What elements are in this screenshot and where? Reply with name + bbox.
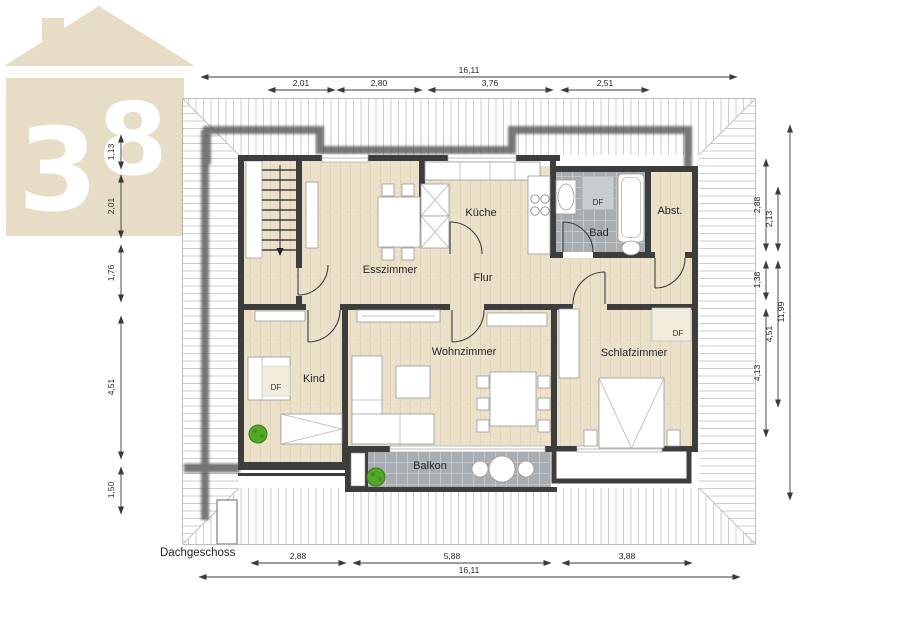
chair: [477, 398, 489, 410]
dim-right-b1: 2,13: [764, 210, 774, 227]
dim-top-seg1: 2,01: [293, 78, 310, 88]
coffee-table: [396, 366, 430, 398]
kitchen-counter-top: [425, 162, 540, 180]
df-label-kind: DF: [271, 383, 282, 392]
dim-top-overall: 16,11: [459, 65, 480, 75]
balcony-chair: [518, 461, 534, 477]
chair: [477, 420, 489, 432]
room-label-kueche: Küche: [465, 207, 496, 219]
floor-flur-ost: [556, 258, 692, 304]
room-label-abstellraum: Abst.: [657, 205, 682, 217]
df-label-schlafzimmer: DF: [673, 329, 684, 338]
shelf-kind: [255, 311, 305, 321]
dim-right-a3: 4,13: [752, 364, 762, 381]
dim-right-b2: 4,51: [764, 325, 774, 342]
dim-bottom-seg3: 3,88: [619, 551, 636, 561]
dim-right-overall: 11,99: [776, 301, 786, 322]
df-label-bad: DF: [593, 198, 604, 207]
dim-bottom-seg2: 5,88: [444, 551, 461, 561]
dining-table-wohnzimmer: [490, 372, 536, 426]
room-label-flur: Flur: [474, 272, 493, 284]
dim-left-seg2: 2,01: [106, 197, 116, 214]
terrace-box: [554, 449, 689, 481]
room-label-kind: Kind: [303, 373, 325, 385]
desk-kind: [281, 414, 342, 444]
room-label-balkon: Balkon: [413, 460, 447, 472]
sideboard-wohnzimmer-2: [487, 313, 547, 326]
floorplan-drawing: Esszimmer Flur Küche Bad Abst. Kind Wohn…: [0, 0, 900, 637]
wardrobe-schlafzimmer: [559, 309, 579, 378]
dining-table-esszimmer: [378, 197, 420, 247]
room-label-bad: Bad: [589, 227, 609, 239]
dim-bottom-seg1: 2,88: [290, 551, 307, 561]
balcony-chair: [472, 461, 488, 477]
dim-bottom-overall: 16,11: [459, 565, 480, 575]
chair: [402, 184, 414, 196]
balcony-access: [351, 453, 365, 486]
dim-left-seg3: 1,76: [106, 264, 116, 281]
chair: [538, 420, 550, 432]
chair: [538, 398, 550, 410]
dim-left-seg1: 1,13: [106, 143, 116, 160]
room-label-schlafzimmer: Schlafzimmer: [601, 347, 668, 359]
dim-top-seg3: 3,76: [482, 78, 499, 88]
chair: [382, 184, 394, 196]
roof-window-schlafzimmer: [652, 308, 691, 341]
dim-left-seg5: 1,50: [106, 481, 116, 498]
sideboard-esszimmer: [306, 182, 318, 248]
dim-top-seg2: 2,80: [371, 78, 388, 88]
dim-right-a1: 2,88: [752, 196, 762, 213]
plan-title: Dachgeschoss: [160, 547, 235, 559]
dim-right-a2: 1,38: [752, 271, 762, 288]
floorplan-canvas: 3 8: [0, 0, 900, 637]
dim-left-seg4: 4,51: [106, 378, 116, 395]
shaft-box: [217, 500, 237, 544]
sofa-horizontal: [352, 414, 434, 444]
toilet: [622, 241, 640, 255]
bath-sink: [558, 184, 574, 210]
nightstand: [584, 430, 597, 446]
room-label-esszimmer: Esszimmer: [363, 264, 418, 276]
room-label-wohnzimmer: Wohnzimmer: [432, 346, 497, 358]
chair: [538, 376, 550, 388]
chair: [477, 376, 489, 388]
dim-top-seg4: 2,51: [597, 78, 614, 88]
nightstand: [667, 430, 680, 446]
chair: [402, 248, 414, 260]
balcony-table: [489, 456, 515, 482]
chair: [382, 248, 394, 260]
plant-kind: [249, 425, 267, 443]
plant-balkon: [367, 468, 385, 486]
double-bed: [599, 378, 664, 448]
